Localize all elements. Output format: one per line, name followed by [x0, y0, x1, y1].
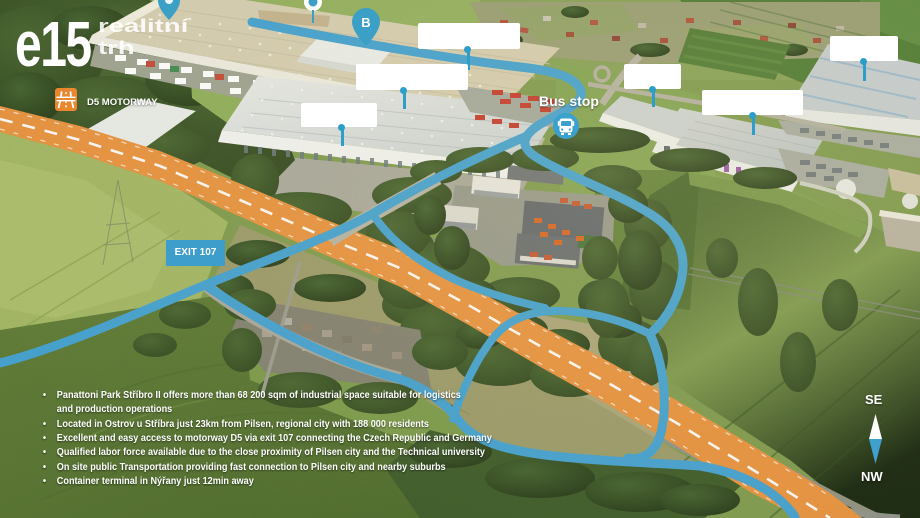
svg-text:B: B	[361, 15, 370, 30]
